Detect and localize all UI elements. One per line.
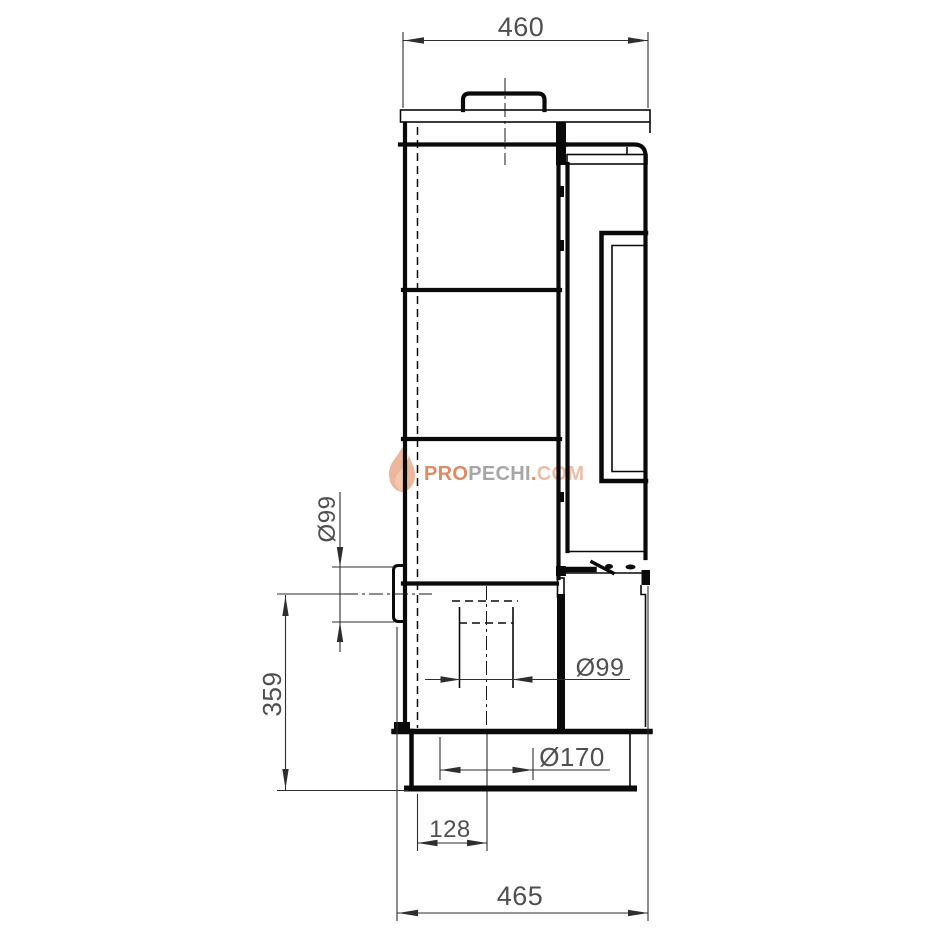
top-plate xyxy=(401,110,651,122)
latch-dot-2 xyxy=(626,565,636,570)
arrowhead xyxy=(513,676,533,682)
dim-text-bottom-flue: Ø99 xyxy=(576,654,625,682)
dim-text-465: 465 xyxy=(497,881,544,911)
door-top-and-face xyxy=(563,145,646,559)
dim-text-base-opening: Ø170 xyxy=(539,742,605,772)
arrowhead xyxy=(628,910,648,916)
dimension-flue-offset: 128 xyxy=(418,794,488,851)
hinge-blob-3 xyxy=(558,492,564,502)
arrowhead xyxy=(628,37,648,43)
hinge-blob-1 xyxy=(558,186,564,197)
dim-text-rear-flue: Ø99 xyxy=(314,496,341,543)
arrowhead xyxy=(282,769,288,789)
dimension-rear-flue-diameter: Ø99 xyxy=(314,492,394,652)
door-glass-frame-inner xyxy=(612,246,646,472)
arrowhead xyxy=(337,622,343,642)
technical-drawing-canvas: PROPECHI.COM xyxy=(0,0,938,938)
door-top-strip xyxy=(567,155,647,165)
arrowhead xyxy=(337,547,343,567)
watermark-pro: PRO xyxy=(424,463,468,485)
lower-front-panel xyxy=(641,585,646,727)
dimension-flue-height: 359 xyxy=(257,594,408,791)
arrowhead xyxy=(282,596,288,616)
dim-text-359: 359 xyxy=(257,672,287,717)
watermark: PROPECHI.COM xyxy=(389,447,584,492)
stove-side-section-drawing: PROPECHI.COM xyxy=(0,0,938,938)
dimension-bottom-flue-diameter: Ø99 xyxy=(425,654,630,683)
hinge-blob-2 xyxy=(558,240,564,251)
door-glass-frame-outer xyxy=(602,233,647,481)
top-flue-collar xyxy=(463,94,545,111)
arrowhead xyxy=(441,767,461,773)
dim-text-460: 460 xyxy=(498,12,545,42)
dimension-overall-depth: 465 xyxy=(397,586,648,921)
latch-dot-1 xyxy=(605,564,613,569)
watermark-pechi: PECHI xyxy=(468,463,531,485)
dimension-base-opening: Ø170 xyxy=(440,737,610,780)
arrowhead xyxy=(441,676,461,682)
arrowhead xyxy=(404,37,424,43)
arrowhead xyxy=(513,767,533,773)
dim-text-128: 128 xyxy=(429,816,471,843)
latch-corner-block xyxy=(642,570,651,585)
arrowhead xyxy=(398,910,418,916)
